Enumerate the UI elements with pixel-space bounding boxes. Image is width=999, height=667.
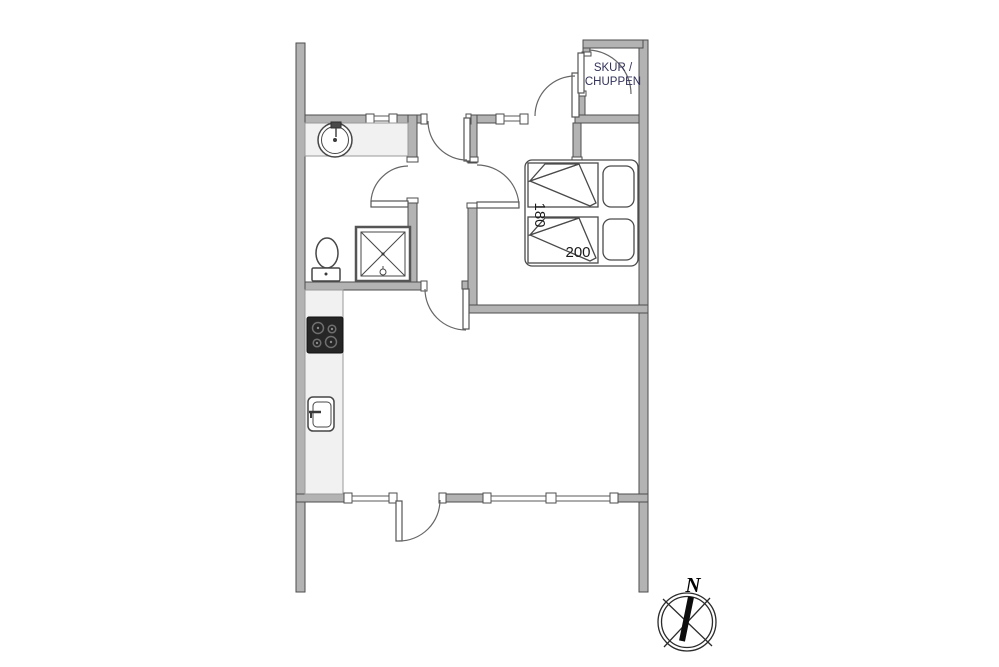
burner-dot: [316, 342, 318, 344]
kitchen-sink: [308, 397, 334, 431]
shed-top-wall: [583, 40, 643, 48]
door-leaf: [396, 501, 402, 541]
bathroom-right-wall-upper: [408, 115, 417, 159]
door-leaf: [578, 53, 584, 93]
floor-plan-page: 180 200 SKUR / CHUPPEN N: [0, 0, 999, 667]
toilet-button: [325, 273, 328, 276]
shower: [356, 227, 410, 281]
bathroom-bottom-wall: [305, 282, 422, 290]
south-wall-kitchen-stub: [296, 494, 345, 502]
bed-width-dimension: 180: [531, 202, 548, 227]
cooktop-surface: [307, 317, 343, 353]
burner-dot: [317, 327, 319, 329]
toilet-bowl: [316, 238, 338, 268]
shed-label-line2: CHUPPEN: [585, 76, 641, 88]
bed-length-dimension: 200: [565, 244, 590, 261]
drain-dot: [333, 138, 337, 142]
jamb-cap: [407, 157, 418, 162]
jamb-cap: [407, 198, 418, 203]
pillow-bottom: [603, 219, 634, 260]
south-wall-east-stub: [618, 494, 648, 502]
left-exterior-wall: [296, 43, 305, 592]
faucet-icon: [331, 122, 341, 128]
right-exterior-wall: [639, 40, 648, 592]
door-leaf: [464, 118, 470, 161]
shower-center-dot: [382, 253, 385, 256]
bathroom-sink: [318, 122, 352, 157]
pillow-top: [603, 166, 634, 207]
door-leaf: [477, 202, 519, 208]
cooktop: [307, 317, 343, 353]
bedroom-bottom-wall: [468, 305, 648, 313]
bedroom-bed: 180 200: [525, 160, 638, 266]
north-wall-under-shed: [575, 115, 639, 123]
compass-north-label: N: [684, 573, 701, 597]
door-leaf: [463, 289, 469, 329]
bedroom-north-pier: [573, 123, 581, 161]
jamb-cap: [467, 203, 478, 208]
floor-background: [0, 0, 999, 667]
burner-dot: [330, 341, 332, 343]
south-wall-mid-segment: [441, 494, 484, 502]
shed-label-line1: SKUR /: [594, 62, 633, 74]
jamb-cap: [421, 114, 427, 124]
jamb-cap: [421, 281, 427, 291]
kitchen: [305, 290, 343, 494]
door-leaf: [371, 201, 408, 207]
floor-plan-canvas: 180 200 SKUR / CHUPPEN N: [0, 0, 999, 667]
burner-dot: [331, 328, 333, 330]
